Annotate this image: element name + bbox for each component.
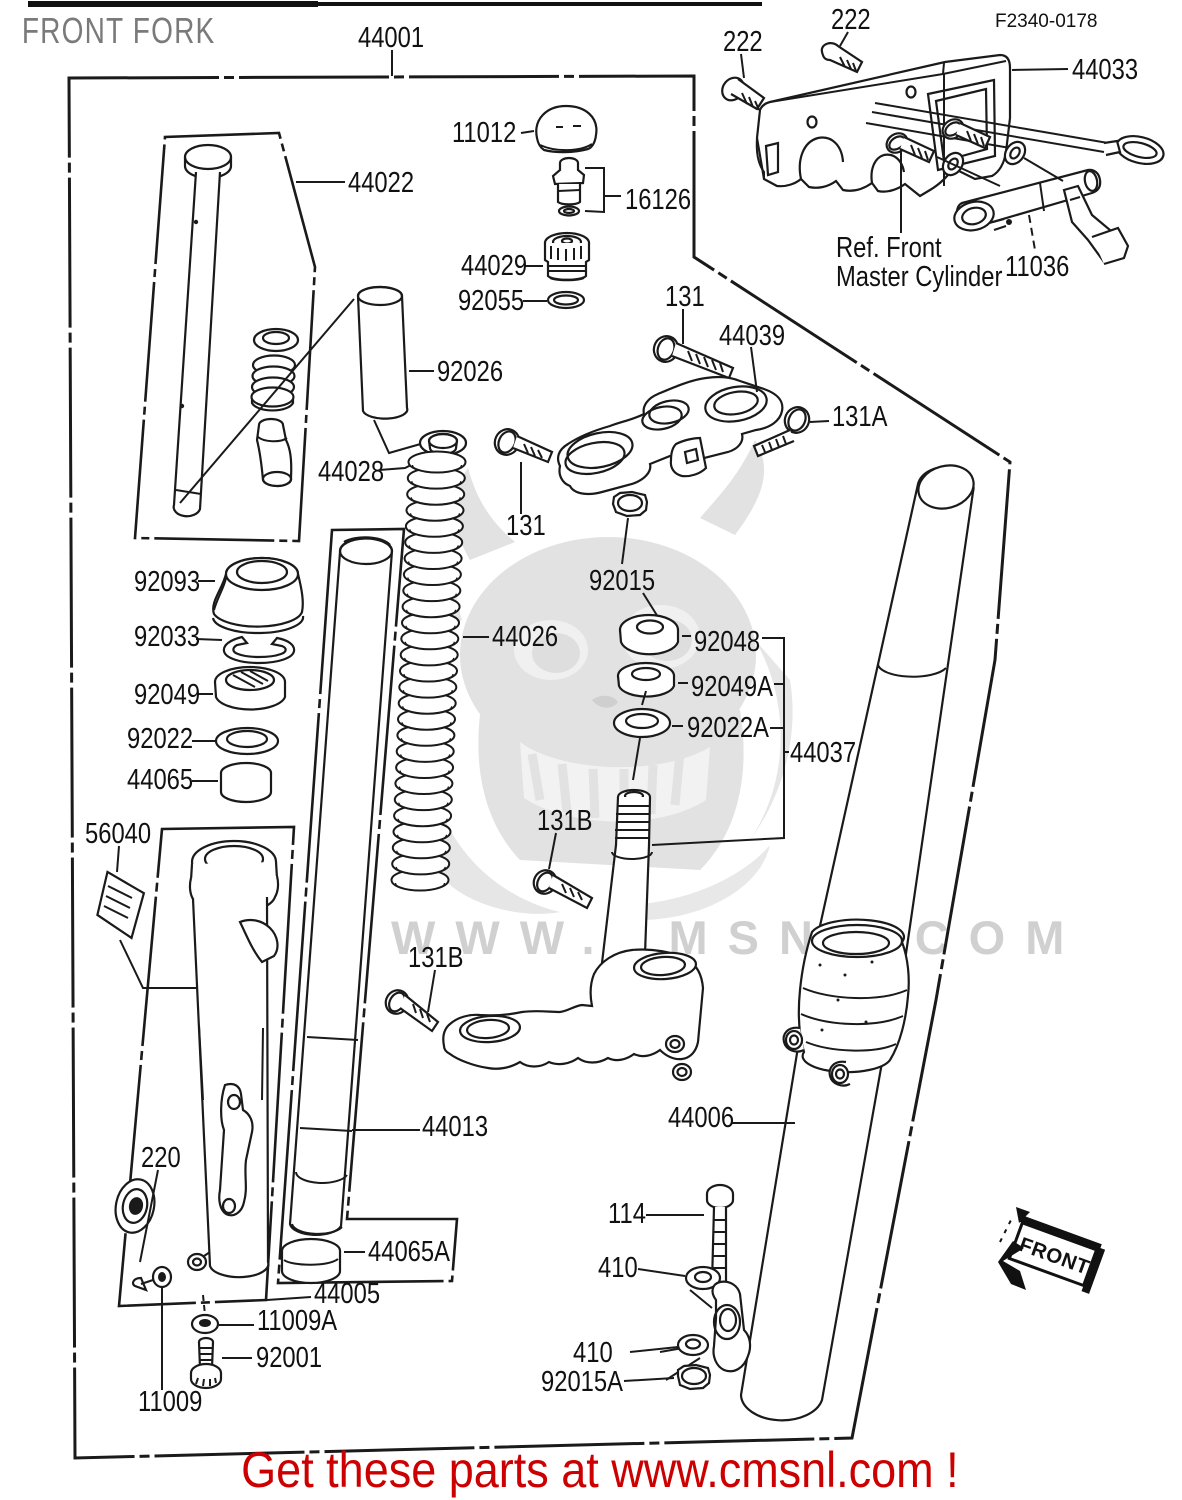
svg-text:92022: 92022 — [127, 722, 193, 755]
svg-text:92015A: 92015A — [541, 1365, 623, 1398]
svg-text:410: 410 — [573, 1336, 613, 1369]
svg-text:220: 220 — [141, 1141, 181, 1174]
svg-text:16126: 16126 — [625, 183, 691, 216]
svg-text:131A: 131A — [832, 400, 888, 433]
svg-text:44029: 44029 — [461, 249, 527, 282]
svg-text:FRONT FORK: FRONT FORK — [22, 11, 216, 51]
svg-text:44065: 44065 — [127, 763, 193, 796]
svg-text:Ref. Front: Ref. Front — [836, 231, 942, 264]
svg-text:131: 131 — [506, 509, 546, 542]
svg-text:92048: 92048 — [694, 625, 760, 658]
svg-text:44006: 44006 — [668, 1101, 734, 1134]
svg-text:F2340-0178: F2340-0178 — [995, 11, 1097, 32]
svg-text:44001: 44001 — [358, 21, 424, 54]
svg-text:114: 114 — [608, 1197, 646, 1230]
svg-text:92033: 92033 — [134, 620, 200, 653]
svg-text:44039: 44039 — [719, 319, 785, 352]
svg-text:92049: 92049 — [134, 678, 200, 711]
svg-text:131B: 131B — [537, 804, 592, 837]
svg-text:11012: 11012 — [452, 116, 516, 149]
svg-text:92001: 92001 — [256, 1341, 322, 1374]
svg-text:11009A: 11009A — [257, 1304, 337, 1337]
svg-text:44022: 44022 — [348, 166, 414, 199]
svg-text:44026: 44026 — [492, 620, 558, 653]
svg-text:44028: 44028 — [318, 455, 384, 488]
svg-text:44065A: 44065A — [368, 1235, 450, 1268]
svg-text:44037: 44037 — [790, 736, 856, 769]
svg-text:410: 410 — [598, 1251, 638, 1284]
svg-text:56040: 56040 — [85, 817, 151, 850]
svg-text:92049A: 92049A — [691, 670, 773, 703]
svg-text:92022A: 92022A — [687, 711, 769, 744]
svg-text:11036: 11036 — [1005, 250, 1069, 283]
svg-text:11009: 11009 — [138, 1385, 202, 1418]
svg-text:44013: 44013 — [422, 1110, 488, 1143]
svg-text:92015: 92015 — [589, 564, 655, 597]
svg-text:Get these parts at www.cmsnl.c: Get these parts at www.cmsnl.com ! — [241, 1443, 958, 1499]
svg-text:WWW.CMSNL.COM: WWW.CMSNL.COM — [391, 911, 1084, 964]
svg-text:131B: 131B — [408, 941, 463, 974]
svg-text:44033: 44033 — [1072, 53, 1138, 86]
svg-text:222: 222 — [723, 25, 763, 58]
svg-text:222: 222 — [831, 3, 871, 36]
svg-text:Master Cylinder: Master Cylinder — [836, 260, 1003, 293]
svg-text:92093: 92093 — [134, 565, 200, 598]
svg-text:131: 131 — [665, 280, 705, 313]
svg-text:92055: 92055 — [458, 284, 524, 317]
svg-text:92026: 92026 — [437, 355, 503, 388]
